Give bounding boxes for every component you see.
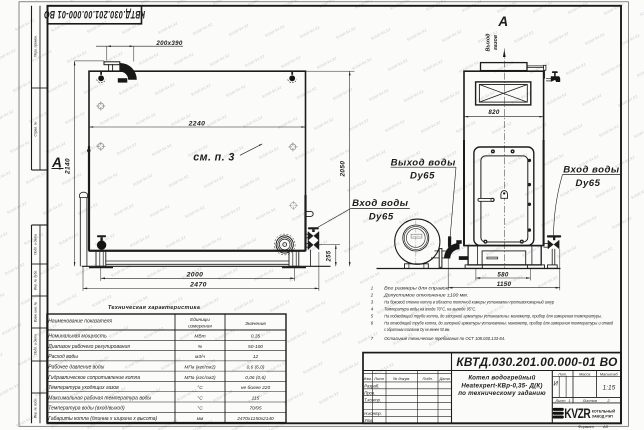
svg-text:kotel-kv.kz: kotel-kv.kz [176, 387, 197, 402]
svg-text:kotel-kv.kz: kotel-kv.kz [209, 52, 230, 67]
svg-text:Вход воды: Вход воды [352, 198, 409, 209]
svg-text:Подп. и дата: Подп. и дата [34, 334, 38, 355]
svg-text:kotel-kv.kz: kotel-kv.kz [206, 113, 227, 128]
svg-text:А3: А3 [602, 424, 609, 429]
svg-text:kotel-kv.kz: kotel-kv.kz [66, 49, 87, 64]
svg-text:Остальные технические требован: Остальные технические требования по ОСТ … [384, 336, 505, 341]
svg-text:kotel-kv.kz: kotel-kv.kz [132, 172, 153, 187]
svg-text:Габариты котла (длинна х ширин: Габариты котла (длинна х ширина х высота… [48, 416, 157, 422]
svg-text:%: % [198, 344, 203, 350]
svg-text:kotel-kv.kz: kotel-kv.kz [633, 124, 644, 139]
svg-text:Выход: Выход [486, 33, 492, 52]
svg-text:Формат: Формат [578, 424, 595, 429]
svg-text:Справ. №: Справ. № [34, 121, 38, 136]
svg-text:kotel-kv.kz: kotel-kv.kz [154, 81, 175, 96]
svg-text:kotel-kv.kz: kotel-kv.kz [280, 54, 301, 69]
svg-text:kotel-kv.kz: kotel-kv.kz [510, 90, 531, 105]
svg-text:Подп.: Подп. [423, 376, 433, 381]
svg-text:1150: 1150 [497, 281, 512, 288]
svg-text:kotel-kv.kz: kotel-kv.kz [110, 263, 131, 278]
svg-text:kotel-kv.kz: kotel-kv.kz [417, 180, 438, 195]
svg-text:kotel-kv.kz: kotel-kv.kz [296, 85, 317, 100]
svg-text:kotel-kv.kz: kotel-kv.kz [102, 50, 123, 65]
svg-text:Подп. и дата: Подп. и дата [34, 234, 38, 255]
svg-text:kotel-kv.kz: kotel-kv.kz [236, 236, 257, 251]
svg-text:ЗАВОД РЭП: ЗАВОД РЭП [592, 415, 614, 419]
svg-text:Heatexpert-КВр-0,35- Д(К): Heatexpert-КВр-0,35- Д(К) [461, 382, 542, 389]
svg-text:kotel-kv.kz: kotel-kv.kz [176, 0, 197, 5]
svg-text:kotel-kv.kz: kotel-kv.kz [42, 201, 63, 216]
svg-text:по техническому заданию: по техническому заданию [458, 390, 546, 397]
svg-text:4: 4 [371, 307, 374, 312]
svg-text:Лист: Лист [373, 376, 385, 381]
svg-text:kotel-kv.kz: kotel-kv.kz [420, 119, 441, 134]
svg-text:2140: 2140 [65, 158, 72, 175]
svg-text:kotel-kv.kz: kotel-kv.kz [190, 82, 211, 97]
svg-text:мм: мм [197, 417, 204, 422]
svg-text:Утв.: Утв. [364, 418, 374, 423]
svg-text:kotel-kv.kz: kotel-kv.kz [138, 51, 159, 66]
svg-text:Масса: Масса [579, 372, 590, 376]
svg-text:Номинальная мощность: Номинальная мощность [48, 334, 107, 340]
svg-text:kotel-kv.kz: kotel-kv.kz [135, 111, 156, 126]
svg-text:kotel-kv.kz: kotel-kv.kz [258, 145, 279, 160]
svg-text:МПа (кгс/см2): МПа (кгс/см2) [184, 375, 216, 381]
svg-text:kotel-kv.kz: kotel-kv.kz [228, 22, 249, 37]
svg-text:kotel-kv.kz: kotel-kv.kz [469, 211, 490, 226]
svg-text:kotel-kv.kz: kotel-kv.kz [507, 151, 528, 166]
svg-text:820: 820 [488, 109, 499, 116]
svg-text:газов: газов [493, 34, 499, 50]
svg-text:kotel-kv.kz: kotel-kv.kz [466, 272, 487, 287]
svg-text:1: 1 [371, 286, 374, 291]
svg-text:kotel-kv.kz: kotel-kv.kz [318, 390, 339, 405]
svg-text:kotel-kv.kz: kotel-kv.kz [225, 83, 246, 98]
svg-text:Все размеры для справок: Все размеры для справок [384, 286, 449, 291]
svg-text:2: 2 [606, 398, 610, 403]
svg-text:Температура воды на входе 70°: Температура воды на входе 70°С, на выход… [384, 307, 476, 312]
svg-text:255: 255 [326, 250, 332, 262]
svg-text:kotel-kv.kz: kotel-kv.kz [266, 359, 287, 374]
svg-text:kotel-kv.kz: kotel-kv.kz [318, 0, 339, 9]
svg-text:kotel-kv.kz: kotel-kv.kz [192, 21, 213, 36]
svg-text:kotel-kv.kz: kotel-kv.kz [513, 29, 534, 44]
svg-text:kotel-kv.kz: kotel-kv.kz [6, 200, 27, 215]
svg-text:м3/ч: м3/ч [195, 354, 205, 360]
svg-text:kotel-kv.kz: kotel-kv.kz [12, 78, 33, 93]
svg-text:kotel-kv.kz: kotel-kv.kz [472, 150, 493, 165]
svg-text:kotel-kv.kz: kotel-kv.kz [351, 56, 372, 71]
svg-text:Dy65: Dy65 [369, 211, 394, 222]
svg-text:kotel-kv.kz: kotel-kv.kz [0, 108, 15, 123]
svg-text:kotel-kv.kz: kotel-kv.kz [455, 119, 476, 134]
svg-text:kotel-kv.kz: kotel-kv.kz [9, 139, 30, 154]
svg-text:°С: °С [197, 395, 203, 401]
svg-text:kotel-kv.kz: kotel-kv.kz [75, 262, 96, 277]
svg-text:kotel-kv.kz: kotel-kv.kz [395, 270, 416, 285]
svg-text:kotel-kv.kz: kotel-kv.kz [600, 62, 621, 77]
svg-text:2470х1150х2140: 2470х1150х2140 [236, 416, 274, 422]
svg-text:kotel-kv.kz: kotel-kv.kz [491, 120, 512, 135]
svg-text:Выход воды: Выход воды [391, 157, 457, 168]
svg-text:kotel-kv.kz: kotel-kv.kz [4, 261, 25, 276]
svg-text:Наименование показателя: Наименование показателя [48, 318, 112, 324]
svg-text:5: 5 [371, 314, 374, 319]
svg-text:kotel-kv.kz: kotel-kv.kz [239, 175, 260, 190]
svg-text:Инв. № подл.: Инв. № подл. [34, 398, 38, 419]
svg-text:kotel-kv.kz: kotel-kv.kz [1, 321, 22, 336]
svg-text:kotel-kv.kz: kotel-kv.kz [108, 324, 129, 339]
svg-text:kotel-kv.kz: kotel-kv.kz [316, 55, 337, 70]
svg-text:kotel-kv.kz: kotel-kv.kz [58, 231, 79, 246]
svg-text:kotel-kv.kz: kotel-kv.kz [335, 25, 356, 40]
svg-text:kotel-kv.kz: kotel-kv.kz [485, 242, 506, 257]
svg-text:kotel-kv.kz: kotel-kv.kz [220, 205, 241, 220]
svg-text:kotel-kv.kz: kotel-kv.kz [406, 27, 427, 42]
svg-text:2050: 2050 [339, 161, 346, 178]
svg-text:с обратным клапаном Dу не мен: с обратным клапаном Dу не менее 50 мм. [384, 327, 450, 332]
svg-text:kotel-kv.kz: kotel-kv.kz [313, 116, 334, 131]
svg-text:kotel-kv.kz: kotel-kv.kz [244, 53, 265, 68]
svg-text:kotel-kv.kz: kotel-kv.kz [329, 147, 350, 162]
svg-text:kotel-kv.kz: kotel-kv.kz [630, 185, 644, 200]
svg-text:°С: °С [197, 406, 203, 412]
svg-text:kotel-kv.kz: kotel-kv.kz [431, 271, 452, 286]
svg-text:kotel-kv.kz: kotel-kv.kz [0, 382, 20, 397]
svg-text:КВТД.030.201.00.000-01 ВО: КВТД.030.201.00.000-01 ВО [456, 355, 617, 369]
svg-text:kotel-kv.kz: kotel-kv.kz [357, 330, 378, 345]
svg-text:На отводящей трубе котла, до з: На отводящей трубе котла, до запорной ар… [384, 321, 613, 326]
svg-text:200х390: 200х390 [155, 40, 182, 47]
svg-text:Масштаб: Масштаб [600, 372, 619, 376]
svg-text:На подводящей трубе котла, до: На подводящей трубе котла, до запорной а… [384, 314, 602, 319]
svg-text:Максимальная рабочая температу: Максимальная рабочая температура воды [48, 395, 151, 401]
svg-text:kotel-kv.kz: kotel-kv.kz [151, 142, 172, 157]
svg-text:Техническая характеристика: Техническая характеристика [108, 305, 200, 311]
svg-text:12: 12 [253, 354, 259, 360]
svg-text:Разраб.: Разраб. [364, 384, 379, 389]
svg-text:kotel-kv.kz: kotel-kv.kz [20, 291, 41, 306]
svg-text:kotel-kv.kz: kotel-kv.kz [217, 266, 238, 281]
svg-text:А: А [497, 14, 508, 29]
svg-text:Расход воды: Расход воды [48, 354, 78, 360]
svg-text:kotel-kv.kz: kotel-kv.kz [143, 325, 164, 340]
svg-text:0,06 (0,6): 0,06 (0,6) [245, 375, 266, 381]
svg-text:kotel-kv.kz: kotel-kv.kz [291, 207, 312, 222]
svg-text:kotel-kv.kz: kotel-kv.kz [97, 171, 118, 186]
svg-text:kotel-kv.kz: kotel-kv.kz [321, 330, 342, 345]
svg-text:Гидравлическое сопротивление к: Гидравлическое сопротивление котла [48, 375, 140, 381]
svg-text:kotel-kv.kz: kotel-kv.kz [212, 388, 233, 403]
svg-text:kotel-kv.kz: kotel-kv.kz [332, 86, 353, 101]
svg-text:см. п. 3: см. п. 3 [193, 151, 234, 163]
svg-text:kotel-kv.kz: kotel-kv.kz [277, 115, 298, 130]
svg-text:kotel-kv.kz: kotel-kv.kz [47, 79, 68, 94]
svg-text:kotel-kv.kz: kotel-kv.kz [253, 267, 274, 282]
svg-text:kotel-kv.kz: kotel-kv.kz [537, 274, 558, 289]
svg-text:kotel-kv.kz: kotel-kv.kz [0, 291, 6, 306]
svg-text:kotel-kv.kz: kotel-kv.kz [598, 123, 619, 138]
svg-text:kotel-kv.kz: kotel-kv.kz [338, 360, 359, 375]
svg-text:kotel-kv.kz: kotel-kv.kz [39, 261, 60, 276]
svg-text:kotel-kv.kz: kotel-kv.kz [584, 31, 605, 46]
svg-text:kotel-kv.kz: kotel-kv.kz [348, 117, 369, 132]
svg-text:kotel-kv.kz: kotel-kv.kz [149, 203, 170, 218]
svg-text:kotel-kv.kz: kotel-kv.kz [0, 0, 20, 1]
svg-text:kotel-kv.kz: kotel-kv.kz [567, 0, 588, 15]
svg-text:И: И [554, 381, 559, 387]
svg-text:kotel-kv.kz: kotel-kv.kz [69, 0, 90, 3]
svg-text:Допустимое отклонение ±100 мм: Допустимое отклонение ±100 мм. [383, 293, 468, 298]
svg-text:kotel-kv.kz: kotel-kv.kz [118, 81, 139, 96]
svg-text:На боковой стенке котла в обла: На боковой стенке котла в области топочн… [384, 300, 554, 305]
svg-text:kotel-kv.kz: kotel-kv.kz [0, 169, 12, 184]
svg-text:kotel-kv.kz: kotel-kv.kz [398, 210, 419, 225]
svg-text:kotel-kv.kz: kotel-kv.kz [343, 239, 364, 254]
svg-text:Взам. инв. №: Взам. инв. № [34, 301, 38, 322]
svg-text:kotel-kv.kz: kotel-kv.kz [116, 141, 137, 156]
svg-text:kotel-kv.kz: kotel-kv.kz [0, 230, 9, 245]
svg-text:KVZR: KVZR [564, 406, 591, 422]
svg-text:kotel-kv.kz: kotel-kv.kz [140, 0, 161, 5]
svg-text:КВТД.030.201.00.000-01 ВО: КВТД.030.201.00.000-01 ВО [44, 8, 146, 21]
svg-text:kotel-kv.kz: kotel-kv.kz [255, 206, 276, 221]
svg-text:2: 2 [370, 293, 374, 298]
svg-text:kotel-kv.kz: kotel-kv.kz [504, 212, 525, 227]
svg-text:kotel-kv.kz: kotel-kv.kz [0, 47, 17, 62]
svg-text:Котел водогрейный: Котел водогрейный [468, 374, 535, 381]
svg-text:Значение: Значение [245, 321, 266, 327]
svg-text:МВт: МВт [194, 334, 205, 340]
svg-text:70/95: 70/95 [249, 406, 261, 412]
svg-text:kotel-kv.kz: kotel-kv.kz [576, 214, 597, 229]
svg-text:kotel-kv.kz: kotel-kv.kz [639, 2, 644, 17]
svg-text:kotel-kv.kz: kotel-kv.kz [340, 300, 361, 315]
svg-text:kotel-kv.kz: kotel-kv.kz [198, 296, 219, 311]
svg-text:kotel-kv.kz: kotel-kv.kz [269, 298, 290, 313]
svg-text:kotel-kv.kz: kotel-kv.kz [275, 176, 296, 191]
svg-text:1: 1 [568, 398, 570, 403]
svg-text:kotel-kv.kz: kotel-kv.kz [310, 177, 331, 192]
svg-text:kotel-kv.kz: kotel-kv.kz [370, 26, 391, 41]
svg-text:2470: 2470 [189, 282, 207, 289]
svg-text:0,35: 0,35 [251, 334, 261, 340]
svg-text:115: 115 [252, 395, 260, 401]
svg-text:kotel-kv.kz: kotel-kv.kz [381, 179, 402, 194]
svg-text:kotel-kv.kz: kotel-kv.kz [439, 89, 460, 104]
svg-text:kotel-kv.kz: kotel-kv.kz [242, 114, 263, 129]
svg-text:kotel-kv.kz: kotel-kv.kz [546, 91, 567, 106]
svg-text:Рабочее давление воды: Рабочее давление воды [48, 364, 104, 370]
svg-text:°С: °С [197, 385, 203, 391]
svg-text:2240: 2240 [188, 120, 206, 127]
svg-text:kotel-kv.kz: kotel-kv.kz [592, 245, 613, 260]
svg-text:kotel-kv.kz: kotel-kv.kz [384, 118, 405, 133]
svg-text:Т.контр.: Т.контр. [364, 397, 381, 402]
svg-text:kotel-kv.kz: kotel-kv.kz [359, 270, 380, 285]
svg-text:kotel-kv.kz: kotel-kv.kz [0, 16, 1, 31]
svg-text:kotel-kv.kz: kotel-kv.kz [548, 30, 569, 45]
svg-text:Перв. примен.: Перв. примен. [34, 35, 38, 57]
svg-text:kotel-kv.kz: kotel-kv.kz [288, 268, 309, 283]
svg-text:kotel-kv.kz: kotel-kv.kz [422, 58, 443, 73]
svg-text:Лист: Лист [554, 398, 566, 403]
svg-text:Dy65: Dy65 [410, 171, 435, 182]
svg-text:kotel-kv.kz: kotel-kv.kz [233, 297, 254, 312]
svg-text:kotel-kv.kz: kotel-kv.kz [452, 180, 473, 195]
svg-text:kotel-kv.kz: kotel-kv.kz [184, 204, 205, 219]
svg-text:2000: 2000 [186, 272, 204, 279]
svg-text:kotel-kv.kz: kotel-kv.kz [124, 355, 145, 370]
svg-text:kotel-kv.kz: kotel-kv.kz [56, 292, 77, 307]
svg-text:Температура воды (вход/выход): Температура воды (вход/выход) [48, 406, 125, 412]
svg-text:kotel-kv.kz: kotel-kv.kz [14, 17, 35, 32]
svg-text:Н.контр.: Н.контр. [364, 411, 382, 416]
svg-text:kotel-kv.kz: kotel-kv.kz [387, 57, 408, 72]
svg-text:1:15: 1:15 [603, 384, 616, 391]
svg-text:kotel-kv.kz: kotel-kv.kz [299, 24, 320, 39]
svg-text:Единицы: Единицы [190, 317, 210, 322]
svg-text:Вход воды: Вход воды [563, 165, 620, 176]
svg-text:3: 3 [371, 300, 374, 305]
svg-text:kotel-kv.kz: kotel-kv.kz [305, 299, 326, 314]
svg-text:kotel-kv.kz: kotel-kv.kz [562, 122, 583, 137]
svg-text:kotel-kv.kz: kotel-kv.kz [264, 23, 285, 38]
svg-text:КОТЕЛЬНЫЙ: КОТЕЛЬНЫЙ [592, 409, 616, 413]
svg-text:kotel-kv.kz: kotel-kv.kz [286, 329, 307, 344]
svg-text:kotel-kv.kz: kotel-kv.kz [636, 63, 644, 78]
svg-text:МПа (кгс/см2): МПа (кгс/см2) [184, 364, 216, 370]
svg-text:kotel-kv.kz: kotel-kv.kz [165, 234, 186, 249]
svg-text:kotel-kv.kz: kotel-kv.kz [0, 412, 1, 427]
svg-text:kotel-kv.kz: kotel-kv.kz [157, 20, 178, 35]
svg-text:kotel-kv.kz: kotel-kv.kz [365, 148, 386, 163]
svg-text:Диапазон рабочего регулировани: Диапазон рабочего регулирования [47, 344, 130, 350]
svg-text:kotel-kv.kz: kotel-kv.kz [99, 111, 120, 126]
svg-text:kotel-kv.kz: kotel-kv.kz [261, 84, 282, 99]
svg-text:Лит.: Лит. [557, 372, 567, 376]
svg-text:kotel-kv.kz: kotel-kv.kz [121, 20, 142, 35]
svg-text:kotel-kv.kz: kotel-kv.kz [302, 360, 323, 375]
svg-text:kotel-kv.kz: kotel-kv.kz [346, 178, 367, 193]
svg-text:kotel-kv.kz: kotel-kv.kz [581, 92, 602, 107]
svg-text:№ докум.: № докум. [393, 376, 410, 381]
svg-text:580: 580 [497, 271, 508, 278]
svg-text:50-100: 50-100 [248, 344, 263, 350]
svg-text:не более 220: не более 220 [241, 385, 271, 391]
svg-text:kotel-kv.kz: kotel-kv.kz [203, 174, 224, 189]
svg-text:kotel-kv.kz: kotel-kv.kz [368, 87, 389, 102]
svg-text:kotel-kv.kz: kotel-kv.kz [0, 351, 4, 366]
svg-text:0,6 (6,0): 0,6 (6,0) [247, 364, 265, 370]
svg-text:kotel-kv.kz: kotel-kv.kz [168, 173, 189, 188]
svg-text:Листов: Листов [582, 398, 597, 403]
svg-text:Дата: Дата [439, 376, 451, 381]
svg-text:Dy65: Dy65 [576, 178, 601, 189]
svg-text:Пров.: Пров. [364, 390, 375, 395]
svg-text:kotel-kv.kz: kotel-kv.kz [324, 269, 345, 284]
svg-text:Изм.: Изм. [364, 376, 372, 381]
svg-text:kotel-kv.kz: kotel-kv.kz [160, 356, 181, 371]
svg-text:Инв. № дубл.: Инв. № дубл. [34, 270, 38, 290]
svg-text:Температура уходящих газов: Температура уходящих газов [48, 385, 119, 391]
svg-text:измерения: измерения [188, 323, 212, 328]
svg-text:kotel-kv.kz: kotel-kv.kz [201, 235, 222, 250]
svg-text:kotel-kv.kz: kotel-kv.kz [129, 233, 150, 248]
svg-text:kotel-kv.kz: kotel-kv.kz [403, 88, 424, 103]
svg-text:kotel-kv.kz: kotel-kv.kz [619, 32, 640, 47]
svg-text:kotel-kv.kz: kotel-kv.kz [173, 51, 194, 66]
svg-text:kotel-kv.kz: kotel-kv.kz [441, 28, 462, 43]
svg-text:6: 6 [371, 321, 374, 326]
svg-text:kotel-kv.kz: kotel-kv.kz [25, 170, 46, 185]
svg-text:kotel-kv.kz: kotel-kv.kz [543, 152, 564, 167]
svg-text:kotel-kv.kz: kotel-kv.kz [565, 61, 586, 76]
svg-text:kotel-kv.kz: kotel-kv.kz [113, 202, 134, 217]
